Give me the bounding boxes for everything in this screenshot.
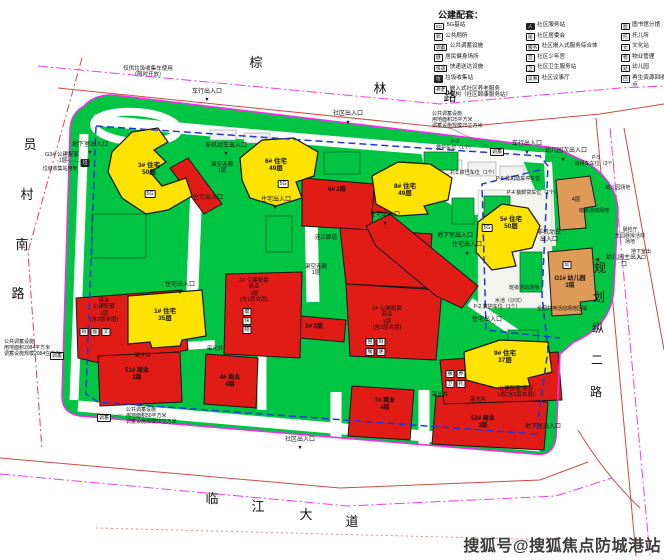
map-annotation: 车行出入口 [512, 141, 542, 148]
road-name: 路 [11, 287, 24, 302]
legend-item-label: 社区议事厅 [542, 75, 570, 82]
map-annotation: 地下室出入口 [630, 250, 653, 262]
legend-item: 服务社区嵌入式服务综合体 [526, 43, 598, 51]
调蓄-icon: 调蓄 [490, 148, 504, 156]
map-annotation: P-2 救护车位（1个） [474, 305, 521, 311]
road-name: 南 [15, 238, 28, 253]
legend-item: 回再生资源回收点 [621, 75, 664, 88]
map-annotation: 住宅出入口 [193, 195, 223, 202]
label-shangye-peitao: 商业 公建配套 1层 (含2层夹层) [90, 298, 119, 323]
健-icon: 健 [434, 54, 443, 62]
legend-item-label: 再生资源回收点 [632, 75, 664, 88]
托-icon: 托 [621, 33, 630, 41]
entrance-arrow: ▼ [177, 290, 182, 296]
entrance-arrow: ▼ [464, 251, 469, 257]
label-building-8: 8# 住宅 49层 [394, 183, 416, 198]
卫-icon: 卫 [526, 65, 535, 73]
label-building-6-podium: 6# 2层 [328, 187, 346, 194]
label-building-6: 6# 住宅 49层 [265, 158, 287, 173]
map-annotation: 非机动车出入口 [205, 143, 247, 150]
legend-item: 居社区居委会 [526, 33, 598, 41]
legend-item-label: 社区少年宫 [537, 54, 565, 61]
map-annotation: 社区出入口 [285, 437, 315, 444]
map-annotation: 仅供垃圾收集车使用 （限时开放） [123, 66, 173, 79]
map-annotation: 采光井 [207, 346, 224, 352]
legend-item: 健居民健身场所 [434, 54, 511, 62]
label-building-2-podium: 2# 2层 [305, 324, 323, 331]
快递-icon: 快递 [434, 65, 447, 73]
调蓄-icon: 调蓄 [50, 352, 64, 360]
road-name: 村 [20, 188, 33, 203]
宫-icon: 宫 [526, 54, 535, 62]
legend-item: 5G5G基站 [434, 22, 511, 30]
map-annotation: 幼儿园场地 [605, 186, 630, 192]
map-annotation: 非机动车 出入口 [537, 230, 561, 244]
label-building-1: 1# 住宅 35层 [154, 308, 176, 323]
map-annotation: 住宅出入口 [472, 317, 502, 324]
entrance-arrow: ◀ [595, 257, 599, 263]
服-icon: 服 [365, 348, 374, 356]
递-icon: 递 [376, 348, 385, 356]
map-annotation: 晨检厅 全园晨操活动场地 [613, 228, 647, 245]
legend-item: 调蓄公共调蓄设施 [434, 43, 511, 51]
legend-item-label: 幼儿园 [632, 64, 649, 71]
物-icon: 物 [621, 54, 630, 62]
厕-icon: 厕 [79, 328, 88, 336]
entrance-arrow: ▼ [345, 120, 350, 126]
map-annotation: 水池（沙坑） [495, 299, 525, 305]
人-icon: 人 [526, 23, 535, 31]
map-annotation: 架空连廊 1层 [305, 264, 327, 277]
legend-item-label: 社区居委会 [537, 33, 565, 40]
托-icon: 托 [456, 380, 465, 388]
road-name: 规 [594, 262, 606, 276]
entrance-arrow: ▼ [223, 151, 228, 157]
图-icon: 图 [90, 328, 99, 336]
map-annotation: P-6 非机动车停车位 [496, 177, 540, 183]
label-building-4: 4# 商业 4层 [220, 375, 240, 389]
entrance-arrow: ▼ [272, 205, 277, 211]
entrance-arrow: ▼ [524, 150, 529, 156]
label-building-5: 5# 住宅 50层 [500, 216, 522, 231]
label-building-51: 51# 商业 2层 [125, 368, 149, 382]
label-orange-4f: 4层 [572, 197, 581, 203]
议事-icon: 议事 [526, 75, 539, 83]
map-annotation: 垃圾收集站用地 [42, 167, 77, 173]
legend-item: 宫社区少年宫 [526, 54, 598, 62]
服务-icon: 服务 [526, 44, 539, 52]
回-icon: 回 [621, 75, 630, 83]
map-annotation: 班级活动场地 [579, 209, 609, 215]
legend-item-label: 社区卫生服务站 [537, 64, 576, 71]
label-peitao-9: 公建配套 商业 1层(含2层夹层) [497, 386, 534, 399]
垃-icon: 垃 [434, 75, 443, 83]
road-name: 大 [299, 508, 312, 523]
legend-item-label: 社区服务站 [537, 22, 565, 29]
legend-item-label: 5G基站 [447, 22, 466, 29]
legend-column-3: 图图书馆分馆托托儿所文文化站物物业管理幼幼儿园回再生资源回收点 [621, 22, 664, 91]
map-annotation: 公共调蓄设施 用地面积25平方米 调蓄设施规模25立方米 [432, 112, 483, 129]
legend-item: 幼幼儿园 [621, 64, 664, 72]
label-building-7: 7# 商业 4层 [375, 398, 395, 412]
legend-item-label: 图书馆分馆 [632, 22, 660, 29]
调蓄-icon: 调蓄 [97, 414, 111, 422]
legend-item-label: 托儿所 [632, 33, 649, 40]
label-building-9: 9# 住宅 37层 [494, 350, 516, 365]
幼-icon: 幼 [562, 261, 571, 269]
map-annotation: 公共调蓄设施 用地面积50平方米 调蓄设施规模50立方米 [126, 408, 177, 425]
road-name: 员 [23, 138, 36, 153]
legend-item-label: 嵌入式社区养老服务 机构（社区颐康服务站） [450, 86, 512, 99]
road-name: 临 [205, 492, 218, 507]
site-plan-image: 棕林路员村南路临江大道规划纵二路3# 住宅 50层6# 住宅 49层8# 住宅 … [0, 0, 664, 560]
物-icon: 物 [242, 326, 251, 334]
entrance-arrow: ▼ [204, 97, 209, 103]
map-annotation: P-4 装卸货车位（1个） [507, 191, 559, 197]
legend-item: 厕公共厕所 [434, 33, 511, 41]
label-building-52: 52# 商业 3层 [471, 416, 495, 430]
map-annotation: P-3 救护车位（1个） [436, 140, 474, 152]
label-2-peitao-west: 2# 公建配套 商业 1层 (含1层夹层) [239, 278, 269, 303]
legend-item-label: 文化站 [632, 43, 649, 50]
map-annotation: 地下室出入口 [437, 233, 473, 240]
legend-item: 议事社区议事厅 [526, 75, 598, 83]
养-icon: 养 [456, 370, 465, 378]
map-annotation: 采光井 [470, 397, 487, 403]
厕-icon: 厕 [376, 338, 385, 346]
legend-column-2: 人社区服务站居社区居委会服务社区嵌入式服务综合体宫社区少年宫卫社区卫生服务站议事… [526, 22, 598, 86]
label-building-3: 3# 住宅 50层 [138, 162, 160, 177]
垃-icon: 垃 [80, 159, 89, 167]
养老-icon: 养老 [434, 86, 447, 94]
文-icon: 文 [621, 44, 630, 52]
调蓄-icon: 调蓄 [434, 44, 447, 52]
卫-icon: 卫 [445, 380, 454, 388]
map-annotation: 车行出入口 [192, 89, 222, 96]
map-annotation: 采光井 [135, 353, 152, 359]
5G-icon: 5G [278, 180, 289, 188]
map-annotation: 架空连廊 1层 [211, 162, 233, 175]
文-icon: 文 [101, 328, 110, 336]
居-icon: 居 [526, 33, 535, 41]
map-annotation: 住宅出入口 [370, 212, 400, 219]
map-annotation: 全园共用活动场地区域 [537, 307, 587, 313]
road-name: 道 [345, 515, 358, 530]
map-annotation: 地下室出入口 [72, 142, 108, 149]
服-icon: 服 [445, 370, 454, 378]
map-annotation: P-1 校巴车位（1个） [451, 171, 498, 177]
5G-icon: 5G [434, 23, 444, 31]
legend-item-label: 物业管理 [632, 54, 654, 61]
快-icon: 快 [242, 317, 251, 325]
map-annotation: 幼儿园次出入口 [545, 148, 587, 155]
label-g3-peitao: G3# 公建配套 -1层 [45, 152, 79, 165]
map-annotation: 住宅出入口 [261, 197, 291, 204]
legend: 公建配套： 5G5G基站厕公共厕所调蓄公共调蓄设施健居民健身场所快递快递送达设施… [432, 4, 664, 27]
road-name: 林 [373, 82, 386, 97]
5G-icon: 5G [482, 224, 493, 232]
map-annotation: 住宅出入口 [452, 242, 482, 249]
legend-title: 公建配套： [438, 8, 664, 21]
label-kindergarten: G1# 幼儿园 3层 [554, 276, 585, 290]
road-name: 划 [593, 291, 605, 305]
road-name: 江 [251, 500, 264, 515]
entrance-arrow: ▼ [297, 445, 302, 451]
厕-icon: 厕 [434, 33, 443, 41]
map-annotation: 地下室出入口 [525, 424, 561, 431]
宫-icon: 宫 [365, 338, 374, 346]
legend-column-1: 5G5G基站厕公共厕所调蓄公共调蓄设施健居民健身场所快递快递送达设施垃垃圾收集站… [434, 22, 511, 101]
road-name: 二 [591, 354, 603, 368]
legend-item: 物物业管理 [621, 54, 664, 62]
legend-item-label: 社区嵌入式服务综合体 [542, 43, 598, 50]
entrance-arrow: ▼ [87, 150, 92, 156]
watermark: 搜狐号@搜狐焦点防城港站 [463, 532, 661, 556]
map-annotation: 采光井 [432, 392, 449, 398]
road-name: 纵 [592, 322, 604, 336]
map-annotation: P-5 出租车车位（3个） [575, 156, 618, 168]
legend-item-label: 公共厕所 [445, 33, 467, 40]
legend-item: 图图书馆分馆 [621, 22, 664, 30]
legend-item-label: 居民健身场所 [445, 54, 479, 61]
map-annotation: 社区出入口 [333, 111, 363, 118]
map-annotation: 幼儿园主出入口 [604, 255, 644, 269]
road-name: 棕 [249, 56, 262, 71]
legend-item: 垃垃圾收集站 [434, 75, 511, 83]
legend-item-label: 公共调蓄设施 [450, 43, 484, 50]
legend-item: 养老嵌入式社区养老服务 机构（社区颐康服务站） [434, 86, 511, 99]
legend-item: 卫社区卫生服务站 [526, 64, 598, 72]
legend-item: 快递快递送达设施 [434, 64, 511, 72]
road-name: 路 [590, 386, 602, 400]
map-annotation: 班级活动场地 [509, 286, 539, 292]
legend-item: 文文化站 [621, 43, 664, 51]
5G-icon: 5G [145, 190, 156, 198]
entrance-arrow: ▼ [560, 157, 565, 163]
legend-item: 人社区服务站 [526, 22, 598, 30]
健-icon: 健 [242, 308, 251, 316]
map-annotation: 住宅出入口 [165, 282, 195, 289]
legend-item: 托托儿所 [621, 33, 664, 41]
幼-icon: 幼 [621, 65, 630, 73]
label-2-peitao-center: 2# 公建配套 商业 1层 (含2层夹层) [372, 306, 402, 331]
map-annotation: 连江廊道 [315, 235, 337, 241]
entrance-arrow: ▼ [382, 221, 387, 227]
legend-item-label: 快递送达设施 [450, 64, 484, 71]
图-icon: 图 [621, 23, 630, 31]
legend-item-label: 垃圾收集站 [445, 75, 473, 82]
